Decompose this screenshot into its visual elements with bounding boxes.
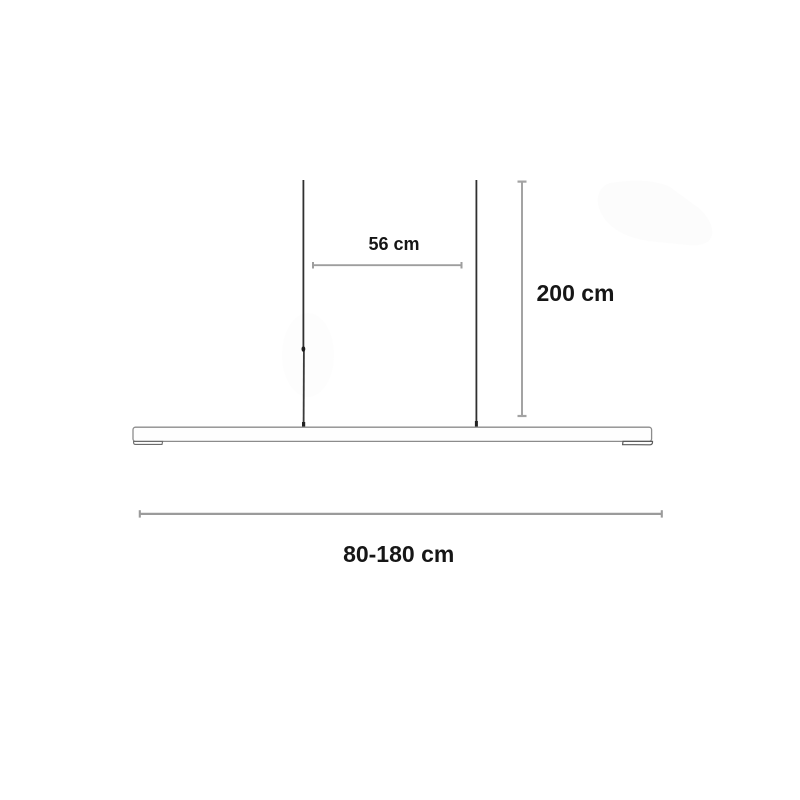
svg-text:80-180 cm: 80-180 cm bbox=[343, 541, 454, 567]
svg-text:56 cm: 56 cm bbox=[368, 234, 419, 254]
svg-text:200 cm: 200 cm bbox=[536, 280, 614, 306]
